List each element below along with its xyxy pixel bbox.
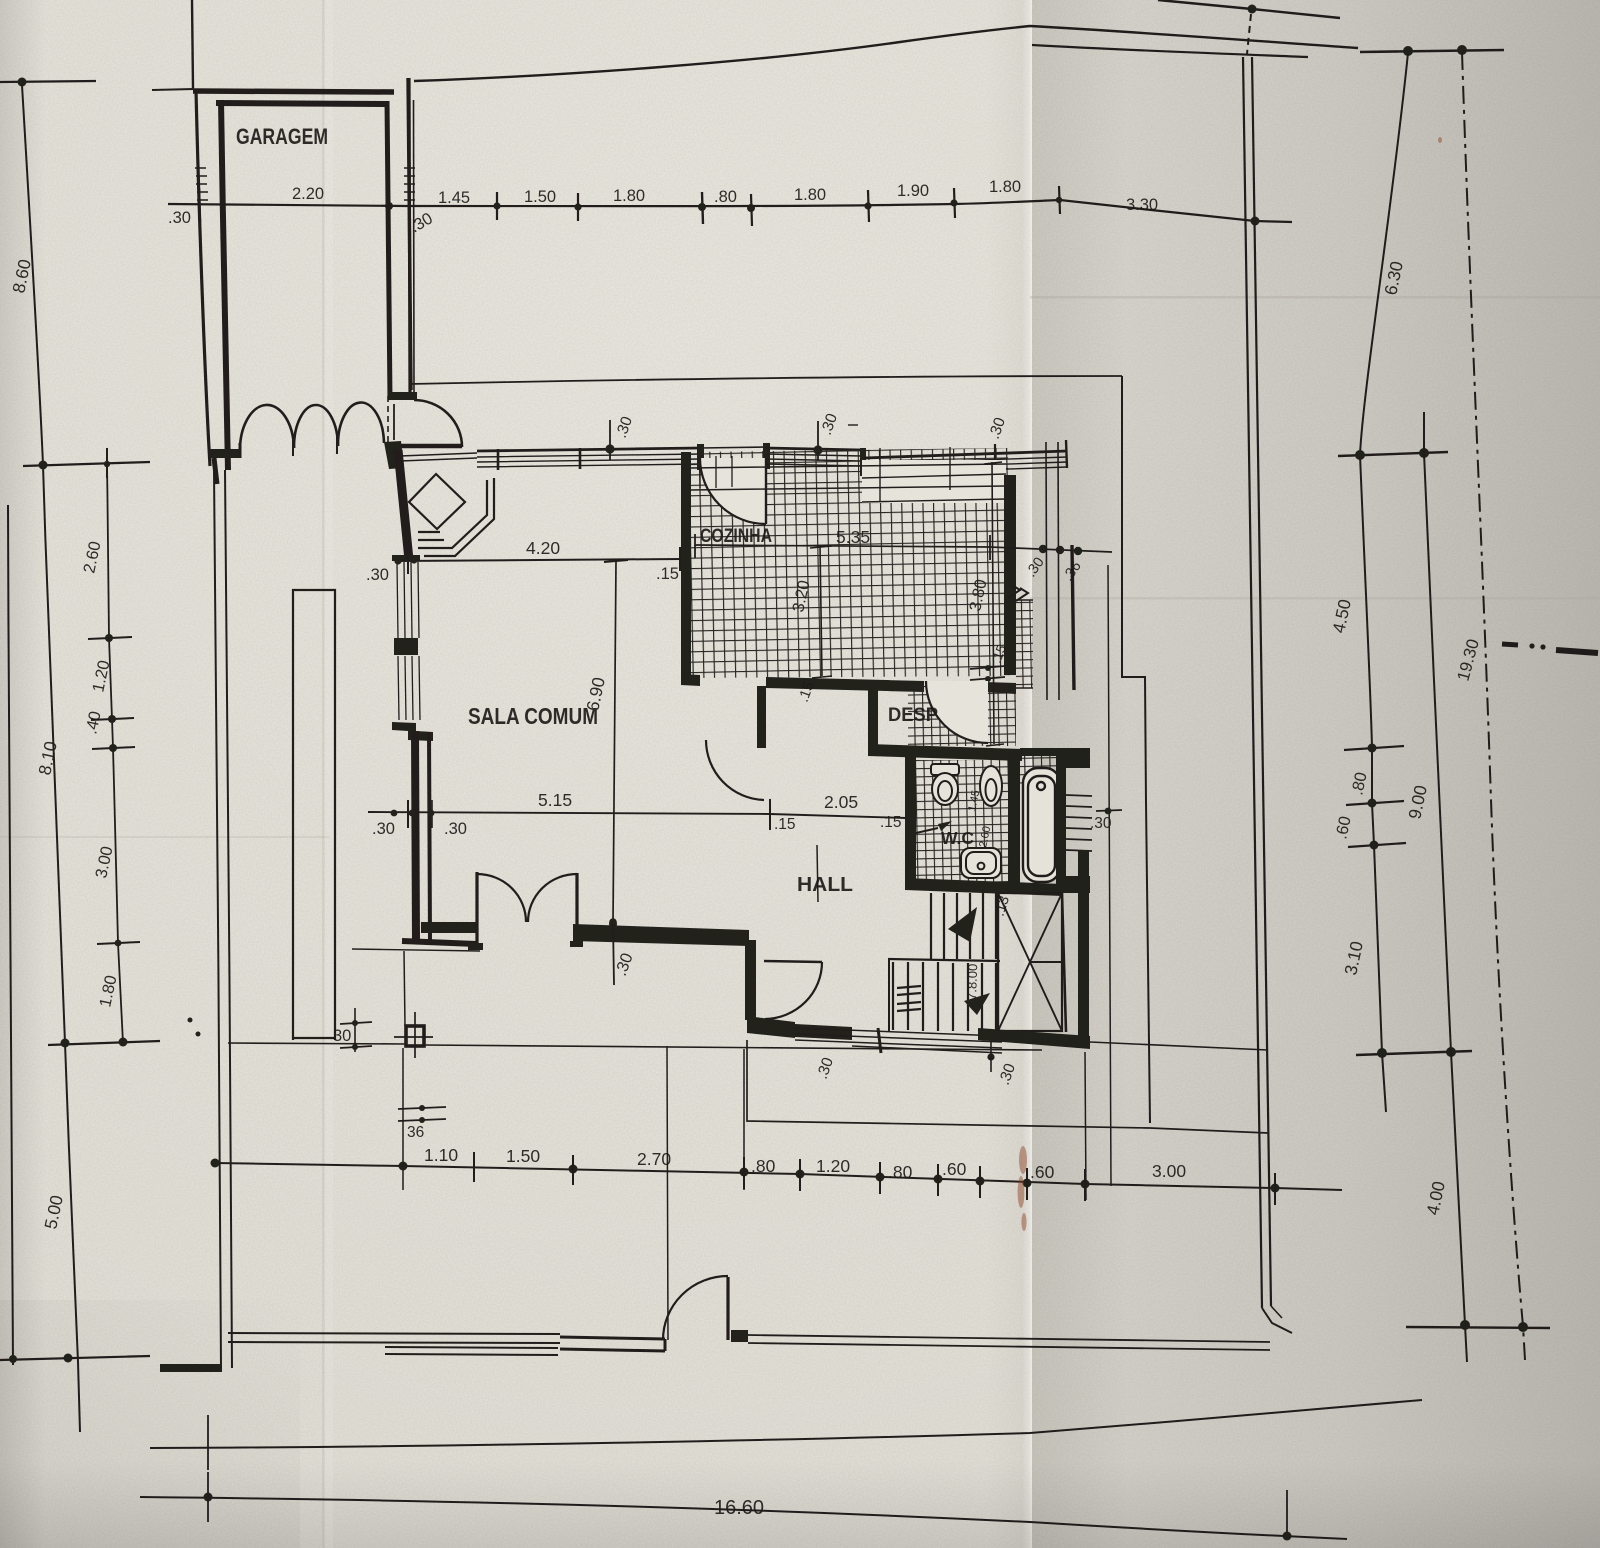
svg-text:.30: .30 bbox=[168, 209, 191, 227]
svg-text:1.50: 1.50 bbox=[506, 1146, 540, 1166]
svg-text:.30: .30 bbox=[1090, 815, 1112, 832]
svg-text:1.80: 1.80 bbox=[989, 178, 1021, 196]
svg-text:.30: .30 bbox=[366, 566, 389, 584]
svg-text:30: 30 bbox=[333, 1027, 351, 1045]
svg-text:1.10: 1.10 bbox=[424, 1145, 458, 1165]
svg-text:.60: .60 bbox=[942, 1159, 967, 1179]
svg-text:COZINHA: COZINHA bbox=[700, 526, 772, 547]
svg-text:W.C: W.C bbox=[941, 828, 974, 848]
svg-text:GARAGEM: GARAGEM bbox=[236, 124, 328, 149]
svg-text:1.90: 1.90 bbox=[897, 182, 929, 200]
svg-text:.15: .15 bbox=[774, 816, 796, 833]
svg-text:5.35: 5.35 bbox=[836, 527, 870, 547]
svg-text:.30: .30 bbox=[444, 820, 467, 838]
svg-text:1.80: 1.80 bbox=[794, 186, 826, 204]
svg-text:.15: .15 bbox=[880, 814, 902, 831]
svg-text:.80: .80 bbox=[751, 1156, 776, 1176]
svg-text:1.45: 1.45 bbox=[438, 189, 470, 207]
svg-text:1.20: 1.20 bbox=[816, 1156, 850, 1176]
svg-text:.80: .80 bbox=[888, 1162, 913, 1182]
svg-text:HALL: HALL bbox=[797, 874, 853, 896]
svg-text:.15: .15 bbox=[656, 565, 679, 583]
svg-text:DESP: DESP bbox=[888, 705, 938, 726]
svg-text:16.60: 16.60 bbox=[714, 1497, 764, 1519]
svg-text:.60: .60 bbox=[1030, 1162, 1055, 1182]
svg-text:SALA COMUM: SALA COMUM bbox=[468, 703, 598, 729]
svg-text:2.05: 2.05 bbox=[824, 792, 858, 812]
svg-text:36: 36 bbox=[407, 1124, 424, 1141]
svg-text:7.8.00: 7.8.00 bbox=[964, 963, 980, 1000]
svg-text:2.70: 2.70 bbox=[637, 1149, 671, 1169]
svg-text:.80: .80 bbox=[714, 188, 737, 206]
svg-text:1.80: 1.80 bbox=[613, 187, 645, 205]
svg-text:4.20: 4.20 bbox=[526, 538, 560, 558]
svg-text:3.30: 3.30 bbox=[1126, 196, 1158, 214]
svg-text:2.20: 2.20 bbox=[292, 185, 324, 203]
svg-text:1.50: 1.50 bbox=[524, 188, 556, 206]
svg-text:5.15: 5.15 bbox=[538, 790, 572, 810]
svg-text:3.00: 3.00 bbox=[1152, 1161, 1186, 1181]
svg-text:.30: .30 bbox=[372, 820, 395, 838]
